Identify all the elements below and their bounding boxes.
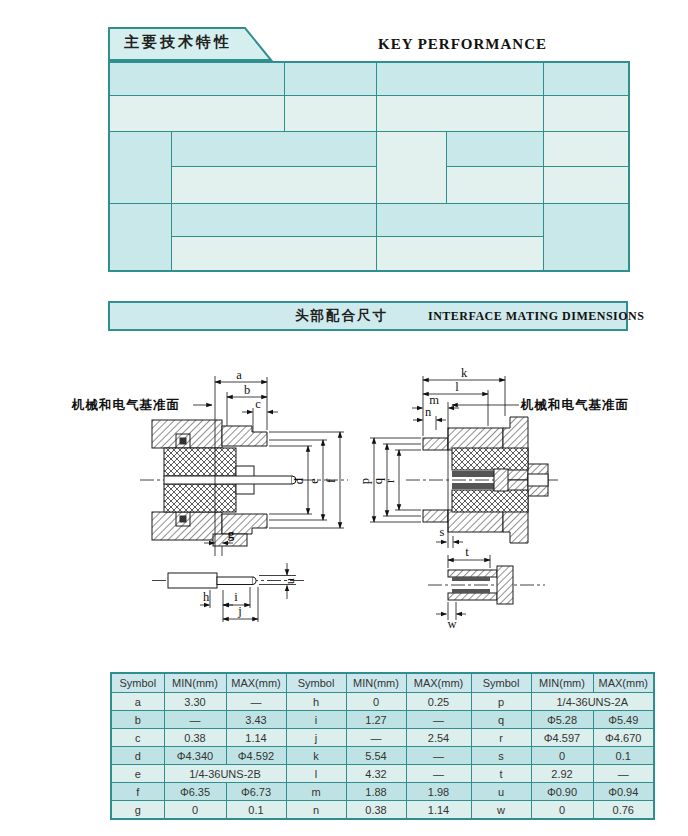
dim-header-min-2: MIN(mm) [346,673,406,693]
dim-value-cell: 0 [531,747,593,765]
datum-plane-label-right: 机械和电气基准面 [520,397,629,412]
dim-label-t: t [465,545,469,559]
dim-symbol-cell: a [111,693,164,711]
dim-label-f: f [324,478,338,483]
dim-value-cell: 3.30 [164,693,226,711]
dim-symbol-cell: m [286,783,346,801]
dim-table-row: g00.1n0.381.14w00.76 [111,801,654,820]
durability-en-cell [376,236,543,271]
pin-detail-drawing: h i j u [152,563,306,622]
center-conductor-cell [446,131,543,166]
dim-label-d: d [292,477,306,484]
temperature-label-cell [109,62,284,95]
dim-value-cell: 0.38 [346,801,406,820]
outer-conductor-value [543,166,629,203]
dim-symbol-cell: e [111,765,164,783]
dim-value-cell: — [406,747,471,765]
dim-symbol-cell: q [471,711,531,729]
dim-value-cell: 0.76 [593,801,654,820]
dim-value-cell: 1/4-36UNS-2A [531,693,654,711]
dim-label-c: c [255,397,261,411]
vswr-semirigid-cell [171,236,376,271]
durability-zh-cell [376,203,543,236]
interface-heading: 头部配合尺寸 INTERFACE MATING DIMENSIONS [108,301,628,331]
dim-symbol-cell: c [111,729,164,747]
dim-label-g: g [228,526,235,541]
dim-value-cell: Φ5.49 [593,711,654,729]
dim-value-cell: Φ0.90 [531,783,593,801]
dim-table-body: a3.30—h00.25p1/4-36UNS-2Ab—3.43i1.27—qΦ5… [111,693,654,820]
dim-header-symbol-3: Symbol [471,673,531,693]
dielectric-value [543,95,629,131]
dim-value-cell: 1.98 [406,783,471,801]
dim-header-min-1: MIN(mm) [164,673,226,693]
dim-symbol-cell: s [471,747,531,765]
dim-value-cell: 0 [346,693,406,711]
impedance-value [284,95,376,131]
durability-value [543,203,629,271]
vswr-flexible-cell [171,203,376,236]
datum-plane-label-left: 机械和电气基准面 [71,397,180,412]
dim-value-cell: 0 [531,801,593,820]
socket-detail-drawing: t w [428,545,545,631]
dim-header-max-2: MAX(mm) [406,673,471,693]
dim-label-e: e [307,478,321,484]
dim-header-symbol-1: Symbol [111,673,164,693]
center-conductor-value [543,131,629,166]
dim-value-cell: — [164,711,226,729]
dim-value-cell: 0.38 [164,729,226,747]
dim-label-l: l [455,380,459,394]
dim-label-w: w [447,617,456,631]
dim-symbol-cell: b [111,711,164,729]
dim-label-a: a [236,368,242,382]
dim-symbol-cell: j [286,729,346,747]
dim-symbol-cell: h [286,693,346,711]
dim-table-header-row: Symbol MIN(mm) MAX(mm) Symbol MIN(mm) MA… [111,673,654,693]
temperature-value [284,62,376,95]
dim-value-cell: 0.1 [226,801,286,820]
dim-label-i: i [234,590,238,604]
interface-drawings: a b c d e f g 机械和电气基准面 [60,355,650,655]
dim-symbol-cell: n [286,801,346,820]
frequency-label-cell [109,131,171,203]
dim-value-cell: 3.43 [226,711,286,729]
jack-section-drawing: k l m n p q r s 机械和电气基准面 [358,366,629,548]
frequency-semirigid-cell [171,166,376,203]
dim-value-cell: Φ4.592 [226,747,286,765]
dim-value-cell: — [406,765,471,783]
dim-value-cell: Φ4.670 [593,729,654,747]
dim-table-row: fΦ6.35Φ6.73m1.881.98uΦ0.90Φ0.94 [111,783,654,801]
dim-header-symbol-2: Symbol [286,673,346,693]
outer-conductor-cell [446,166,543,203]
dim-value-cell: — [226,693,286,711]
dim-label-n: n [425,405,432,419]
dim-header-min-3: MIN(mm) [531,673,593,693]
dim-label-s: s [440,525,445,539]
dim-symbol-cell: f [111,783,164,801]
dim-value-cell: 1.27 [346,711,406,729]
dim-label-p: p [358,478,372,484]
dim-header-max-1: MAX(mm) [226,673,286,693]
dim-value-cell: l [286,765,346,783]
dim-value-cell: Φ5.28 [531,711,593,729]
dim-label-j: j [237,604,241,618]
dim-value-cell: Φ4.597 [531,729,593,747]
dim-value-cell: Φ6.35 [164,783,226,801]
dim-value-cell: 2.54 [406,729,471,747]
dim-value-cell: 0.25 [406,693,471,711]
section-tab-title: 主要技术特性 [108,33,248,52]
dim-table-row: e1/4-36UNS-2Bl4.32—t2.92— [111,765,654,783]
dim-value-cell: t [471,765,531,783]
dim-symbol-cell: u [471,783,531,801]
dim-table-row: dΦ4.340Φ4.592k5.54—s00.1 [111,747,654,765]
dim-value-cell: 1.14 [226,729,286,747]
dim-symbol-cell: w [471,801,531,820]
dim-symbol-cell: r [471,729,531,747]
dim-value-cell: Φ0.94 [593,783,654,801]
insulation-value [543,62,629,95]
dim-value-cell: 1/4-36UNS-2B [164,765,286,783]
dielectric-label-cell [376,95,543,131]
dim-symbol-cell: 4.32 [346,765,406,783]
contact-label-cell [376,131,446,203]
dim-value-cell: 1.88 [346,783,406,801]
key-performance-title: KEY PERFORMANCE [355,36,570,53]
dim-table-row: b—3.43i1.27—qΦ5.28Φ5.49 [111,711,654,729]
dim-header-max-3: MAX(mm) [593,673,654,693]
dim-symbol-cell: g [111,801,164,820]
vswr-label-cell [109,203,171,271]
dim-table-row: a3.30—h00.25p1/4-36UNS-2A [111,693,654,711]
dim-symbol-cell: k [286,747,346,765]
key-performance-table [108,61,630,272]
insulation-label-cell [376,62,543,95]
dim-label-k: k [461,366,468,380]
dim-value-cell: — [346,729,406,747]
datasheet-page: 主要技术特性 KEY PERFORMANCE [0,0,688,836]
dim-value-cell: Φ6.73 [226,783,286,801]
dim-value-cell: 1.14 [406,801,471,820]
dim-value-cell: 0.1 [593,747,654,765]
plug-section-drawing: a b c d e f g 机械和电气基准面 [71,368,348,556]
impedance-label-cell [109,95,284,131]
dim-symbol-cell: i [286,711,346,729]
frequency-flexible-cell [171,131,376,166]
dim-value-cell: Φ4.340 [164,747,226,765]
dim-symbol-cell: 2.92 [531,765,593,783]
dim-label-h: h [203,590,210,604]
dim-table-row: c0.381.14j—2.54rΦ4.597Φ4.670 [111,729,654,747]
dim-label-u: u [283,577,297,584]
dimensions-table: Symbol MIN(mm) MAX(mm) Symbol MIN(mm) MA… [110,672,655,820]
dim-value-cell: — [593,765,654,783]
dim-symbol-cell: p [471,693,531,711]
dim-label-b: b [244,383,250,397]
interface-heading-en: INTERFACE MATING DIMENSIONS [428,309,644,324]
dim-value-cell: 5.54 [346,747,406,765]
dim-label-r: r [383,478,397,483]
interface-heading-zh: 头部配合尺寸 [295,308,388,325]
dim-value-cell: — [406,711,471,729]
dim-value-cell: 0 [164,801,226,820]
dim-symbol-cell: d [111,747,164,765]
